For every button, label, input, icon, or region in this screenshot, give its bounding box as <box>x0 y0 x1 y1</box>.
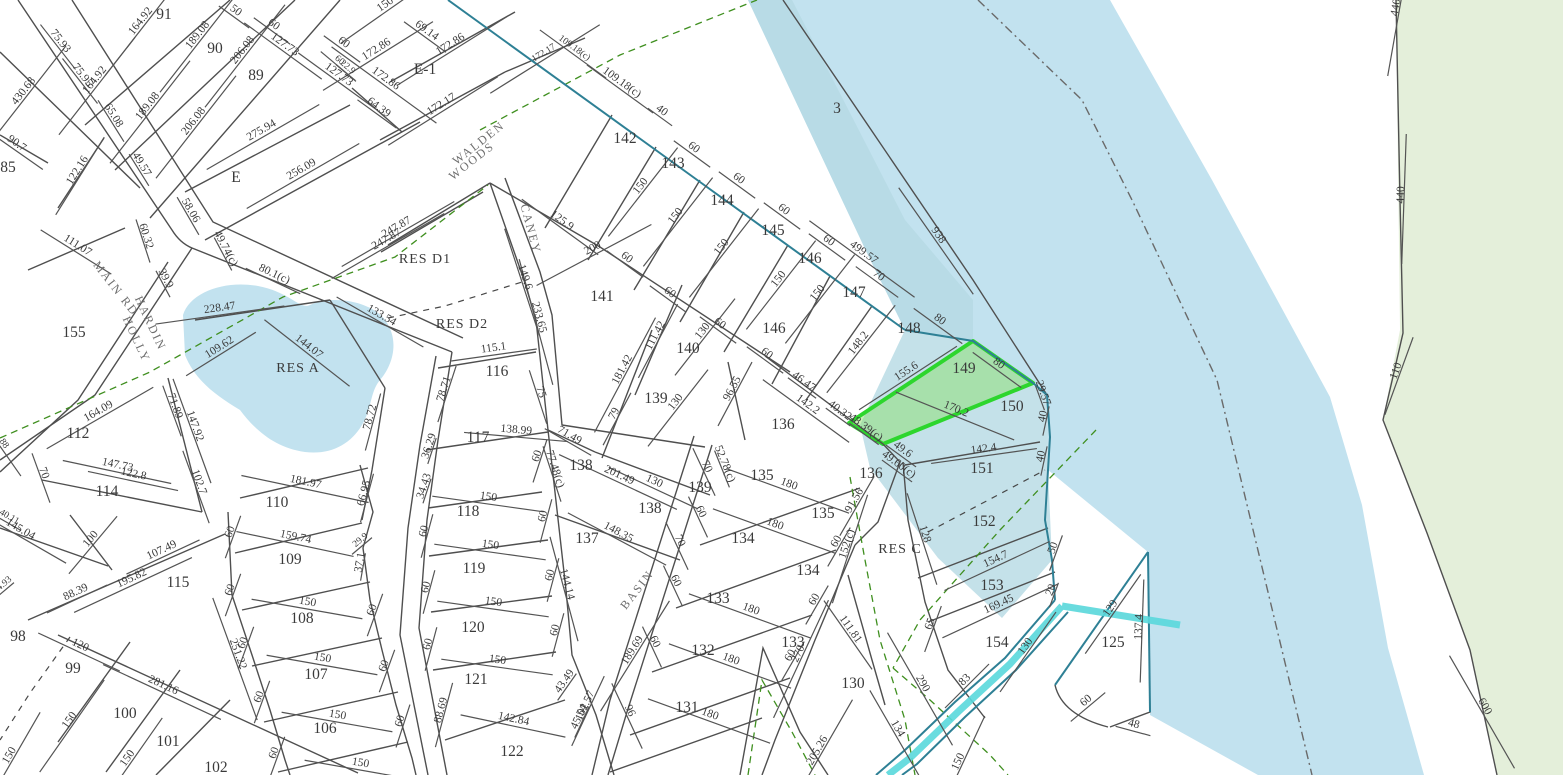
dimension-label: 64.39 <box>365 95 393 120</box>
parcel-number-122[interactable]: 122 <box>500 743 523 760</box>
parcel-number-138[interactable]: 138 <box>569 457 593 474</box>
dimension-label: 60 <box>731 170 748 187</box>
parcel-number-114[interactable]: 114 <box>96 483 119 500</box>
parcel-number-131[interactable]: 131 <box>675 699 698 716</box>
parcel-number-137[interactable]: 137 <box>575 530 599 547</box>
parcel-number-116[interactable]: 116 <box>486 363 509 380</box>
dimension-label: 430.68 <box>9 75 38 108</box>
dimension-label: 60 <box>393 714 408 729</box>
dimension-label: 138.99 <box>500 423 533 438</box>
dimension-tick <box>587 65 653 113</box>
parcel-number-3[interactable]: 3 <box>833 100 841 117</box>
dimension-label: 71.89 <box>165 392 185 421</box>
dimension-label: 195.82 <box>115 566 149 590</box>
dimension-tick <box>98 718 163 775</box>
dimension-label: 206.08 <box>228 34 257 67</box>
dimension-label: 109.18(c) <box>600 65 643 101</box>
parcel-number-133[interactable]: 133 <box>706 590 730 607</box>
parcel-number-132[interactable]: 132 <box>691 642 714 659</box>
dimension-tick <box>332 214 445 279</box>
parcel-number-149[interactable]: 149 <box>952 360 976 377</box>
parcel-number-119[interactable]: 119 <box>463 560 486 577</box>
parcel-number-106[interactable]: 106 <box>313 720 337 737</box>
parcel-number-146[interactable]: 146 <box>798 250 822 267</box>
dimension-label: 60 <box>223 524 238 539</box>
dimension-label: 48 <box>1127 717 1141 732</box>
parcel-number-E-1[interactable]: E-1 <box>414 61 436 78</box>
parcel-number-100[interactable]: 100 <box>113 705 137 722</box>
dimension-label: 205.26 <box>804 734 830 768</box>
parcel-number-89[interactable]: 89 <box>248 67 264 84</box>
dimension-label: 134 <box>888 718 907 739</box>
road-label: MAIN RD <box>90 258 141 318</box>
dimension-label: 60 <box>647 634 663 650</box>
area-label: RES D2 <box>436 317 488 332</box>
dimension-label: 180 <box>721 651 742 668</box>
dimension-label: 150 <box>479 490 498 504</box>
dimension-label: 60 <box>223 582 238 597</box>
dimension-label: 200 <box>582 239 603 258</box>
dimension-label: 180 <box>779 476 800 493</box>
dimension-label: 60 <box>821 232 838 249</box>
parcel-number-145[interactable]: 145 <box>761 222 785 239</box>
dimension-label: 45.54 <box>568 702 590 731</box>
dimension-tick <box>207 105 320 170</box>
dimension-label: 180 <box>741 601 762 618</box>
dimension-label: 70 <box>699 459 715 475</box>
area-label: RES A <box>276 361 320 376</box>
dimension-label: 150 <box>631 175 651 196</box>
parcel-number-148[interactable]: 148 <box>897 320 921 337</box>
dimension-label: 130 <box>666 391 686 412</box>
dimension-label: 39.9 <box>156 267 176 291</box>
dimension-label: 96 <box>622 703 638 719</box>
dimension-label: 150 <box>484 595 503 609</box>
parcel-number-107[interactable]: 107 <box>304 666 328 683</box>
dimension-label: 77.48(c) <box>543 449 566 490</box>
parcel-number-117[interactable]: 117 <box>467 429 490 446</box>
dimension-label: 180 <box>700 706 721 723</box>
parcel-number-91[interactable]: 91 <box>156 6 172 23</box>
parcel-number-141[interactable]: 141 <box>590 288 613 305</box>
parcel-number-108[interactable]: 108 <box>290 610 314 627</box>
dimension-label: 60 <box>693 504 709 520</box>
parcel-number-102[interactable]: 102 <box>204 759 227 775</box>
road-label: BASIN <box>617 567 656 612</box>
dimension-label: 50 <box>1046 540 1061 555</box>
dimension-label: 60 <box>619 249 636 266</box>
dimension-label: 43.49 <box>552 667 577 695</box>
parcel-number-142[interactable]: 142 <box>613 130 636 147</box>
dimension-tick <box>247 144 360 209</box>
dimension-label: 120 <box>70 636 91 654</box>
parcel-number-112[interactable]: 112 <box>67 425 90 442</box>
dimension-label: 49.74(c) <box>211 229 240 269</box>
dimension-label: 150 <box>298 595 317 610</box>
dimension-label: 60 <box>759 345 776 362</box>
dimension-label: 201.49 <box>602 463 636 487</box>
parcel-number-153[interactable]: 153 <box>980 577 1004 594</box>
parcel-number-146[interactable]: 146 <box>762 320 786 337</box>
parcel-number-147[interactable]: 147 <box>842 284 866 301</box>
parcel-number-136[interactable]: 136 <box>859 465 883 482</box>
dimension-label: 150 <box>949 751 967 772</box>
dimension-label: 60.32 <box>136 222 155 251</box>
parcel-number-121[interactable]: 121 <box>464 671 487 688</box>
parcel-number-139[interactable]: 139 <box>644 390 668 407</box>
dimension-label: 150 <box>0 745 19 766</box>
road-label: CANEY <box>517 202 544 255</box>
parcel-number-143[interactable]: 143 <box>661 155 685 172</box>
dimension-tick <box>47 387 154 449</box>
dimension-label: 50 <box>228 2 245 19</box>
parcel-number-110[interactable]: 110 <box>266 494 289 511</box>
parcel-number-E[interactable]: E <box>231 169 240 186</box>
dimension-label: 60 <box>686 139 703 156</box>
dimension-label: 233.65 <box>529 300 549 334</box>
parcel-number-135[interactable]: 135 <box>811 505 835 522</box>
parcel-number-150[interactable]: 150 <box>1000 398 1024 415</box>
parcel-number-134[interactable]: 134 <box>796 562 820 579</box>
parcel-number-138[interactable]: 138 <box>638 500 662 517</box>
area-label: RES C <box>878 542 922 557</box>
dimension-label: 148.35 <box>602 520 636 546</box>
dimension-label: 78.71 <box>434 375 453 404</box>
dimension-label: 65.08 <box>102 101 126 130</box>
dimension-label: 122.8 <box>120 466 148 483</box>
dimension-label: 75 <box>533 385 548 400</box>
parcel-number-125[interactable]: 125 <box>1101 634 1125 651</box>
parcel-number-85[interactable]: 85 <box>0 159 16 176</box>
dimension-label: 122.16 <box>64 154 91 187</box>
parcel-number-139[interactable]: 139 <box>688 479 712 496</box>
dimension-label: 164.09 <box>82 398 116 424</box>
parcel-map-viewport[interactable]: 91908985EE-1164.92164.92189.08189.08206.… <box>0 0 1563 775</box>
dimension-label: 159.74 <box>279 528 313 546</box>
dimension-label: 125.9 <box>548 208 576 233</box>
dimension-label: 181.97 <box>289 473 323 491</box>
dimension-label: 80.1(c) <box>257 262 292 287</box>
parcel-number-144[interactable]: 144 <box>710 192 734 209</box>
dimension-label: 180 <box>765 516 786 533</box>
parcel-number-154[interactable]: 154 <box>985 634 1009 651</box>
dimension-label: 100 <box>81 528 101 549</box>
parcel-number-90[interactable]: 90 <box>207 40 223 57</box>
dimension-label: 440 <box>1395 186 1408 204</box>
dimension-label: 60 <box>266 16 283 33</box>
dimension-label: 144.14 <box>557 567 577 601</box>
dimension-label: 275.94 <box>245 117 279 143</box>
dimension-label: 70 <box>36 466 51 481</box>
dimension-label: 69.14 <box>413 18 441 43</box>
dimension-label: 40 <box>654 102 671 119</box>
dimension-label: 52.78(c) <box>712 444 738 484</box>
dimension-label: 107.49 <box>145 538 179 562</box>
parcel-number-115[interactable]: 115 <box>167 574 190 591</box>
dimension-label: 150 <box>712 236 732 257</box>
parcel-number-152[interactable]: 152 <box>972 513 995 530</box>
parcel-number-98[interactable]: 98 <box>10 628 26 645</box>
dimension-label: 79 <box>606 405 622 421</box>
dimension-label: 60 <box>365 602 380 617</box>
parcel-number-155[interactable]: 155 <box>62 324 86 341</box>
parcel-number-101[interactable]: 101 <box>156 733 179 750</box>
parcel-number-136[interactable]: 136 <box>771 416 795 433</box>
dimension-tick <box>0 712 40 775</box>
small-dimension-label: 88 <box>0 437 11 451</box>
dimension-label: 147.92 <box>184 409 206 443</box>
area-label: RES D1 <box>399 252 451 267</box>
dimension-label: 60 <box>806 591 822 607</box>
dimension-label: 60 <box>530 449 545 464</box>
dimension-label: 206.08 <box>179 105 208 138</box>
dimension-label: 189.08 <box>133 90 162 123</box>
dimension-tick <box>669 644 791 688</box>
dimension-label: 150 <box>481 538 500 552</box>
dimension-label: 130 <box>644 472 665 490</box>
parcel-number-134[interactable]: 134 <box>731 530 755 547</box>
dimension-label: 290 <box>913 673 932 694</box>
parcel-number-130[interactable]: 130 <box>841 675 865 692</box>
dimension-label: 70 <box>672 533 688 549</box>
dimension-label: 60 <box>236 635 251 650</box>
dimension-label: 164.92 <box>126 5 155 38</box>
dimension-label: 256.09 <box>285 156 319 182</box>
dimension-label: 102.7 <box>189 468 209 497</box>
dimension-label: 149.6 <box>515 263 534 292</box>
dimension-label: 49.57 <box>130 150 154 179</box>
parcel-number-118[interactable]: 118 <box>457 503 480 520</box>
dimension-label: 137.4 <box>1133 614 1146 641</box>
dimension-label: 60 <box>776 201 793 218</box>
dimension-label: 96.55 <box>721 374 744 403</box>
dimension-label: 150 <box>351 756 370 771</box>
parcel-number-151[interactable]: 151 <box>970 460 993 477</box>
parcel-number-120[interactable]: 120 <box>461 619 485 636</box>
dimension-label: 150 <box>60 710 80 731</box>
dimension-label: 150 <box>313 651 332 666</box>
dimension-label: 46.47 <box>790 369 818 394</box>
parcel-number-140[interactable]: 140 <box>676 340 700 357</box>
parcel-number-99[interactable]: 99 <box>65 660 81 677</box>
dimension-label: 88.69 <box>432 696 450 724</box>
dimension-label: 189.69 <box>619 634 646 667</box>
parcel-number-135[interactable]: 135 <box>750 467 774 484</box>
parcel-number-109[interactable]: 109 <box>278 551 302 568</box>
dimension-label: 60 <box>267 745 282 760</box>
parcel-map-canvas[interactable]: 91908985EE-1164.92164.92189.08189.08206.… <box>0 0 1563 775</box>
dimension-label: 150 <box>488 653 507 667</box>
dimension-label: 60 <box>377 658 392 673</box>
